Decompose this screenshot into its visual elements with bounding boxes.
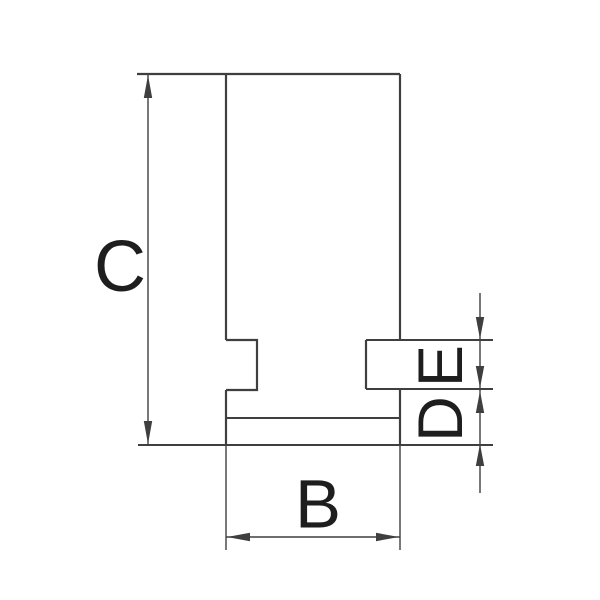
dim-e-arrow-bottom-icon bbox=[476, 366, 484, 388]
left-groove-notch bbox=[226, 340, 257, 390]
dim-label-c: C bbox=[94, 227, 146, 307]
technical-drawing-canvas: C B E D bbox=[0, 0, 600, 600]
dim-c-arrow-down-icon bbox=[144, 421, 152, 444]
dim-d-arrow-top-icon bbox=[476, 391, 484, 413]
dim-d-arrow-bottom-icon bbox=[476, 444, 484, 466]
dim-b-arrow-right-icon bbox=[376, 533, 399, 541]
dim-e-arrow-top-icon bbox=[476, 317, 484, 339]
jaw-side-view-drawing: C B E D bbox=[0, 0, 600, 600]
dimension-d-e bbox=[476, 293, 484, 493]
dim-label-d: D bbox=[406, 396, 476, 442]
dim-label-b: B bbox=[295, 466, 341, 543]
dim-label-e: E bbox=[406, 345, 476, 387]
part-outline bbox=[137, 74, 493, 445]
dimension-labels: C B E D bbox=[94, 227, 476, 543]
dim-b-arrow-left-icon bbox=[227, 533, 250, 541]
dim-c-arrow-up-icon bbox=[144, 75, 152, 98]
